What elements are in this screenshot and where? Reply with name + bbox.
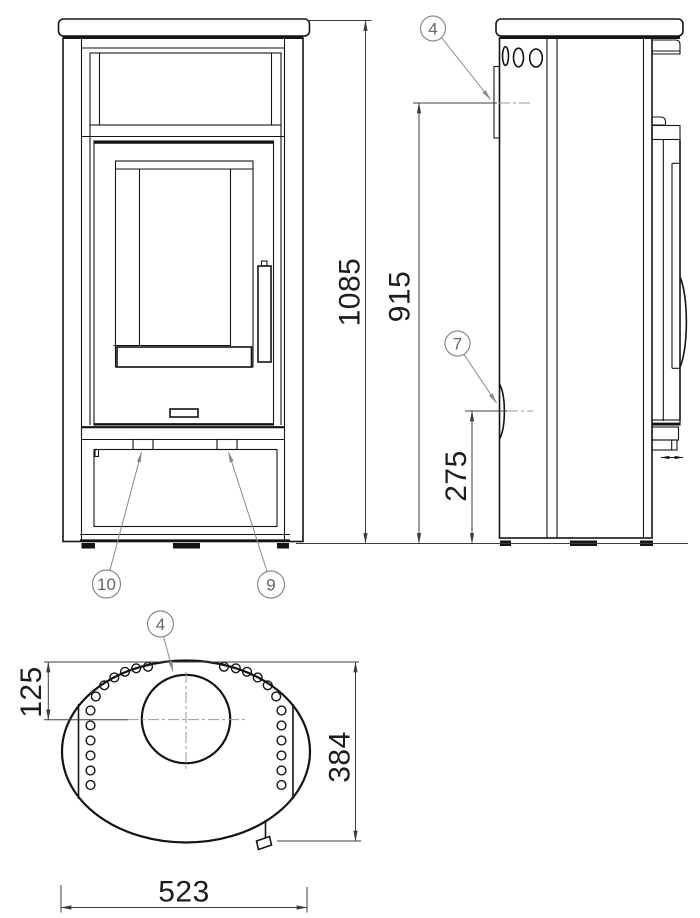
drawing-sheet: 1085 915 275 125 384 523 4 7 [0,0,700,918]
top-view [62,661,310,850]
dim-value-overall-height: 1085 [334,258,367,327]
side-body [500,38,653,538]
top-louvre-hole [514,48,524,67]
rear-flue-outlet [494,67,500,139]
fixing-tab-left [133,440,153,450]
dimension-overall-height: 1085 [296,21,688,544]
side-view [479,19,686,546]
side-door-bottom [652,427,679,440]
callout-7-label: 7 [453,334,462,353]
top-view-handle [257,837,272,850]
door-hinge-top [652,40,680,54]
top-louvre-hole [503,47,509,66]
side-door-top-bar [652,126,680,140]
dim-value-flue-center-offset: 125 [15,666,48,718]
front-foot-left [82,543,96,549]
door-hinge-mid [652,117,666,125]
front-door [94,141,274,425]
callout-10-front: 10 [93,452,142,598]
callout-7-side: 7 [445,331,497,403]
door-glass-frame [116,161,254,367]
front-view [59,19,310,549]
stove-technical-drawing: 1085 915 275 125 384 523 4 7 [0,0,700,918]
callout-10-label: 10 [97,575,116,594]
dim-value-side-outlet-height: 275 [440,450,473,502]
lower-panel [94,450,277,527]
glass-bottom-bar [117,347,252,367]
side-door-handle [680,277,686,367]
dimension-width: 523 [61,876,307,913]
dimension-depth: 384 [277,662,361,841]
callout-9-front: 9 [229,452,285,598]
top-louvre-hole [530,49,543,67]
dim-value-rear-outlet-height: 915 [384,271,417,323]
dim-value-width: 523 [158,876,210,909]
door-handle [258,266,271,362]
callout-4-label: 4 [428,19,437,38]
callout-4-top-label: 4 [156,615,165,634]
side-top-plate [496,19,683,36]
callout-9-label: 9 [266,575,275,594]
front-foot-middle [173,543,200,549]
front-foot-right [277,543,289,549]
dimension-flue-center-offset: 125 [15,662,359,720]
air-vent-slot [170,409,198,417]
callout-4-side: 4 [421,16,491,100]
dim-value-depth: 384 [324,731,357,783]
front-top-plate [59,19,310,36]
fixing-tab-right [217,440,237,450]
dimension-side-outlet-height: 275 [440,411,533,544]
upper-window [90,53,281,125]
